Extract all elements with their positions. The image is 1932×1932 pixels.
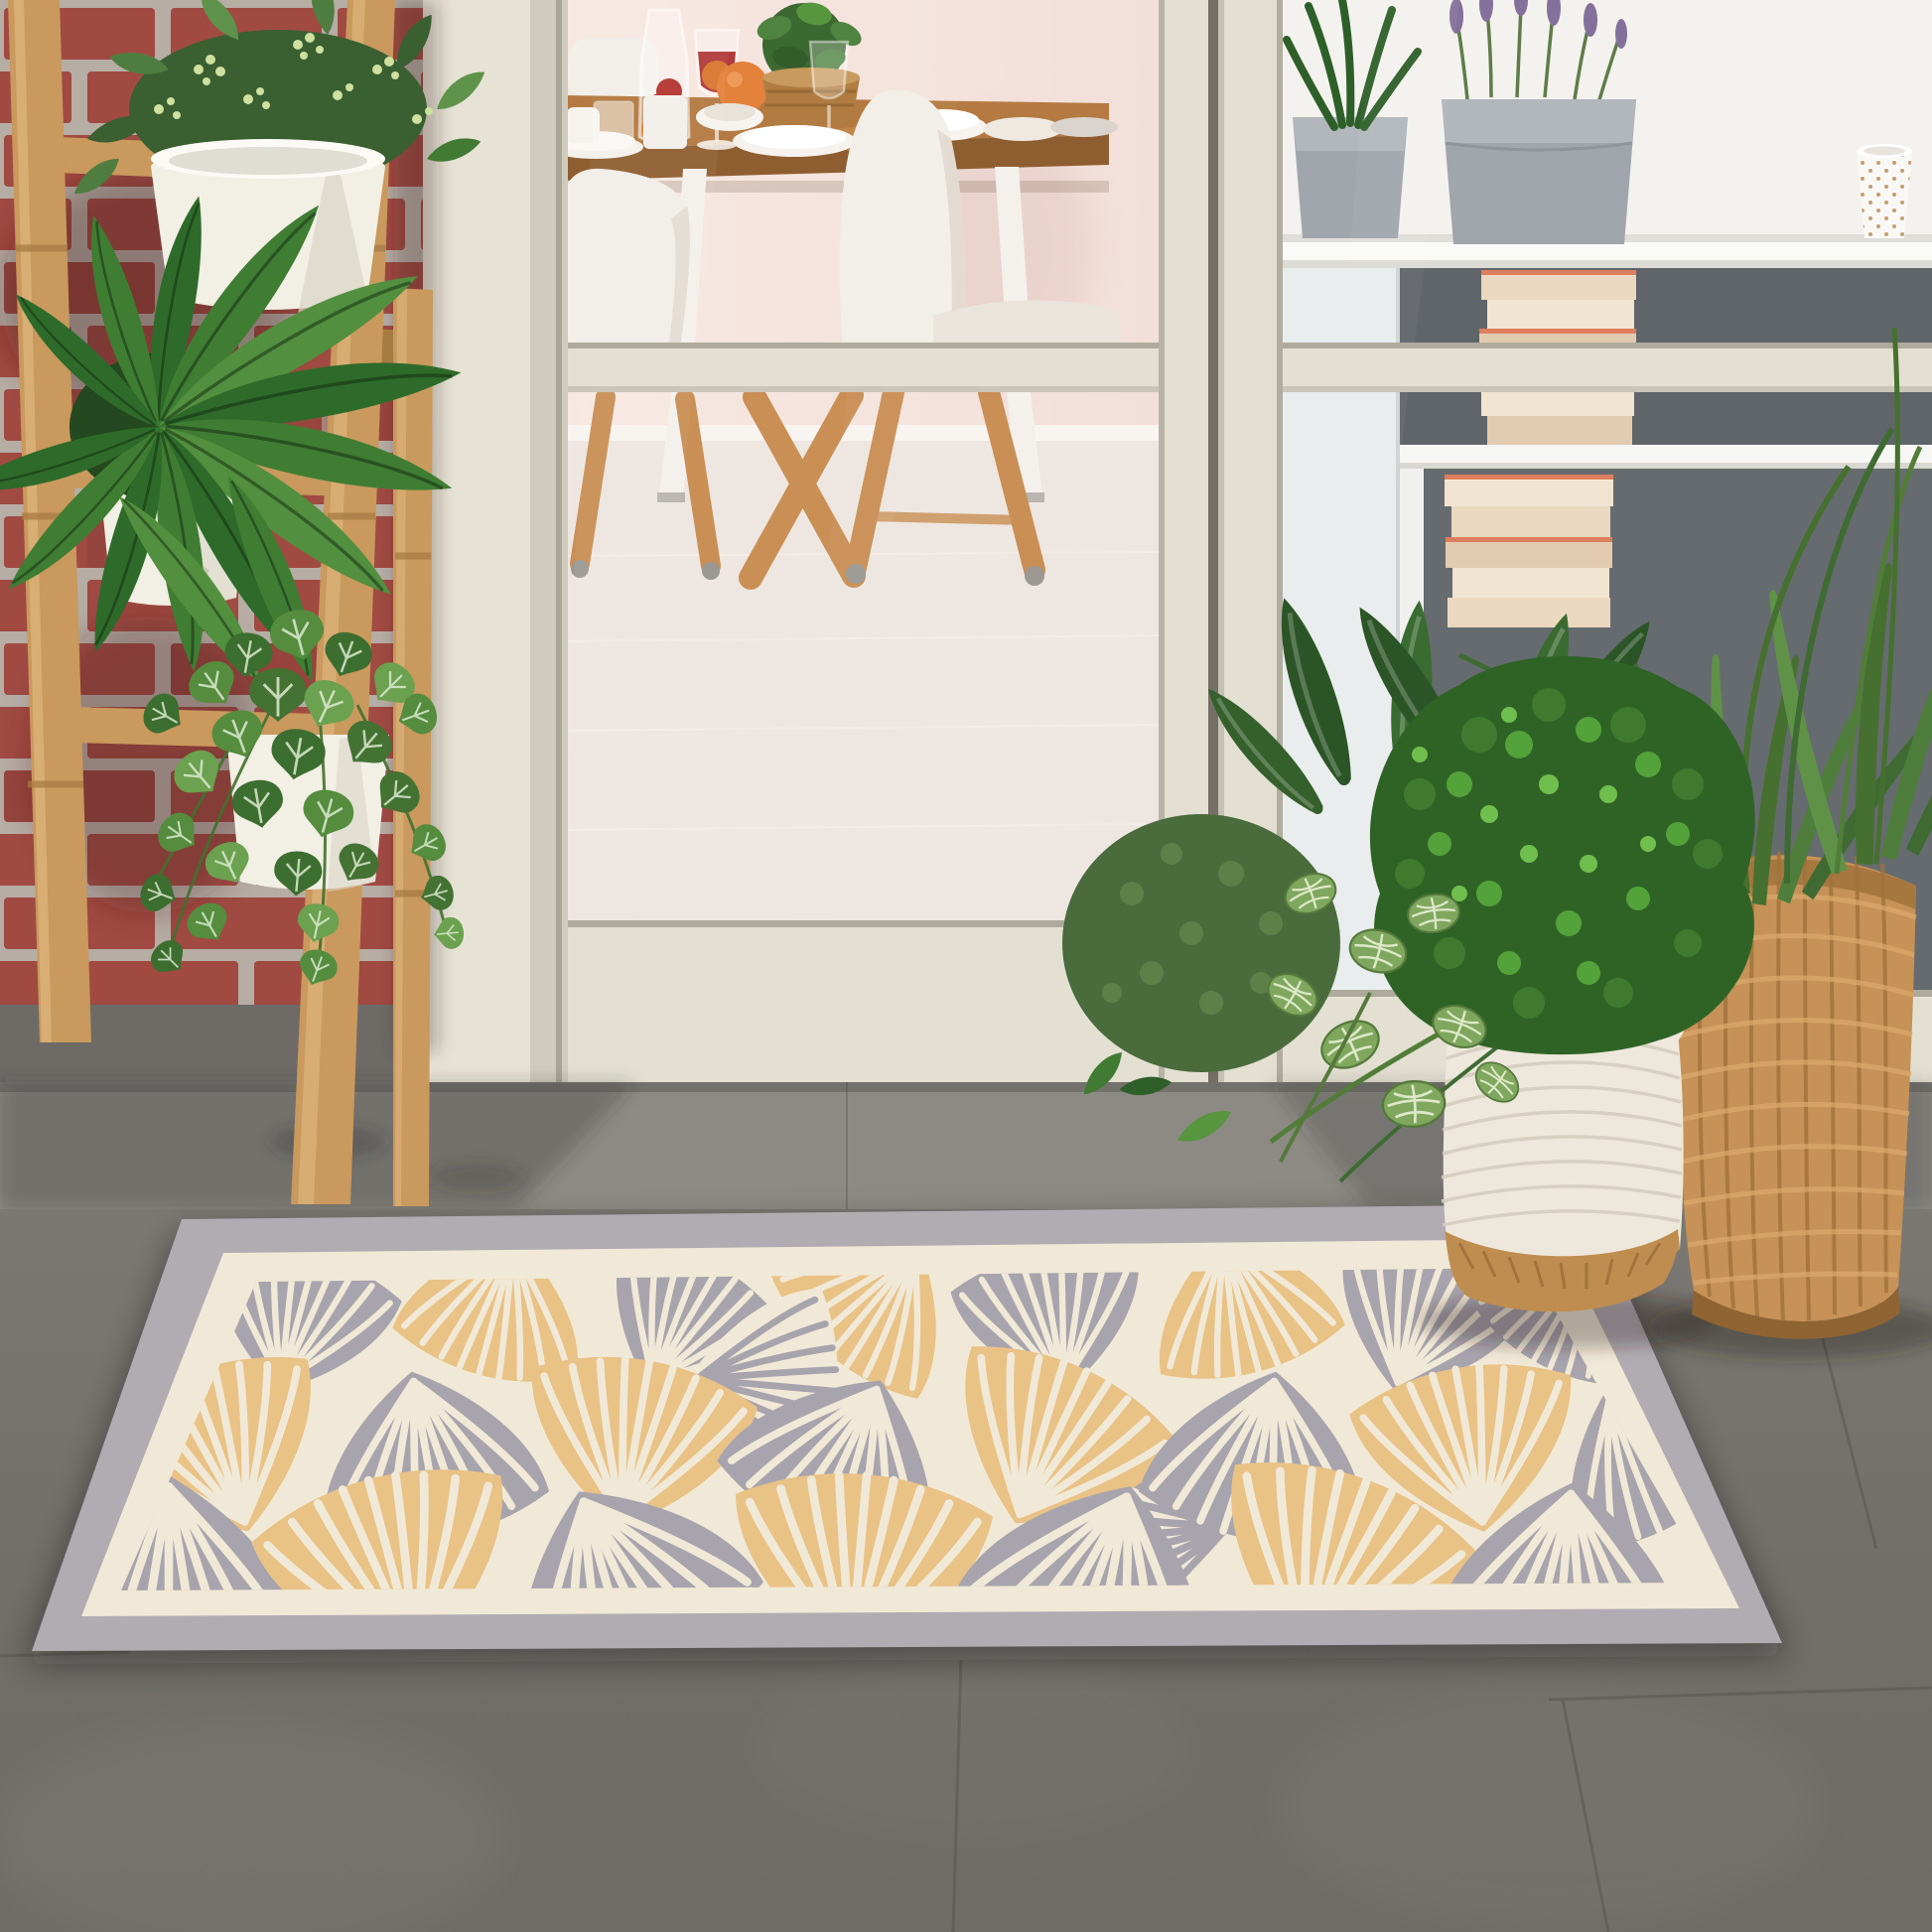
eucalyptus-bush <box>1062 814 1340 1072</box>
left-door-glass-dining-room <box>548 0 1159 923</box>
boxwood-bush <box>1370 656 1755 1054</box>
scene-canvas <box>0 0 1932 1932</box>
right-door-muntin <box>1283 343 1932 392</box>
entryway-lifestyle-photo <box>0 0 1932 1932</box>
book-stack-lower <box>1445 475 1613 627</box>
wine-glass-empty <box>810 42 848 98</box>
left-door-muntin <box>562 343 1159 392</box>
dotted-mug <box>1857 144 1912 238</box>
